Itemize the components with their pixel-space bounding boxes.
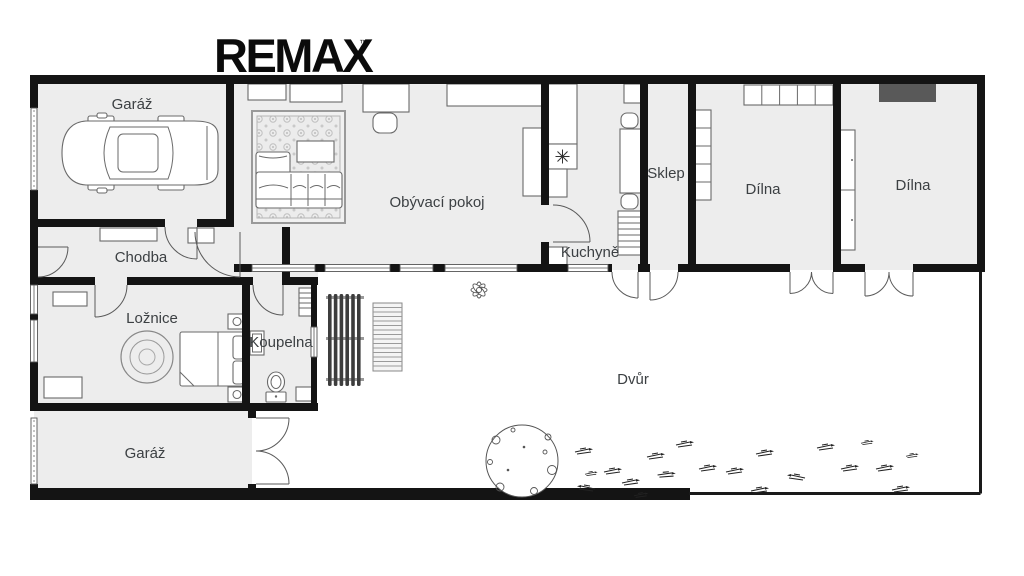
toilet-icon [266,372,286,402]
label-bedroom: Ložnice [126,310,178,327]
hall-sideboard [100,228,157,241]
remax-logo: REMAX ™ [214,29,373,82]
remax-logo-text: REMAX [214,29,373,82]
label-workshop-right: Dílna [895,177,931,194]
chair [621,113,638,128]
fridge [624,84,641,103]
window [568,265,608,272]
garage-door-line [31,418,37,484]
tree-icon [486,425,558,497]
window [325,265,390,272]
car-icon [62,113,218,193]
courtyard-boundary [689,272,981,494]
lounger [373,303,402,371]
label-courtyard: Dvůr [617,371,649,388]
double-door-arc [865,272,913,296]
label-workshop-left: Dílna [745,181,781,198]
room-workshop-right-floor [837,80,981,270]
door-arc [612,272,638,298]
label-living-room: Obývací pokoj [389,194,484,211]
door-arc [650,272,678,300]
label-garage-top: Garáž [112,96,153,113]
garage-door-line [31,108,37,190]
trademark-symbol: ™ [359,38,368,48]
flower-icon [471,282,487,298]
courtyard-items [326,282,919,497]
label-cellar: Sklep [647,165,685,182]
room-workshop-left-floor [692,80,837,270]
label-garage-bottom: Garáž [125,445,166,462]
floorplan-page: Garáž Obývací pokoj Kuchyně Sklep Dílna … [0,0,1024,576]
workbench [879,84,936,102]
bed-icon [180,332,247,386]
window [31,320,38,362]
window [31,285,38,314]
desk [363,84,409,112]
slat-screen [326,294,364,386]
living-cabinet [248,84,286,100]
chair [621,194,638,209]
living-cabinet [290,84,342,102]
double-door-arc [256,418,289,484]
floor-plan: Garáž Obývací pokoj Kuchyně Sklep Dílna … [0,0,1024,576]
window [400,265,433,272]
living-counter [447,84,545,106]
bedroom-cabinet [44,377,82,398]
room-hallway-floor [34,223,318,281]
bathroom-cabinet [296,387,313,401]
label-kitchen: Kuchyně [561,244,619,261]
label-hallway: Chodba [115,249,168,266]
hall-cabinet [188,228,214,243]
radiator-icon [299,288,313,316]
double-door-arc [790,272,833,294]
desk-chair [373,113,397,133]
coffee-table [297,141,334,162]
window [252,265,315,272]
bedroom-cabinet [53,292,87,306]
stairs-icon [618,211,643,255]
window [445,265,517,272]
label-bathroom: Koupelna [249,334,313,351]
